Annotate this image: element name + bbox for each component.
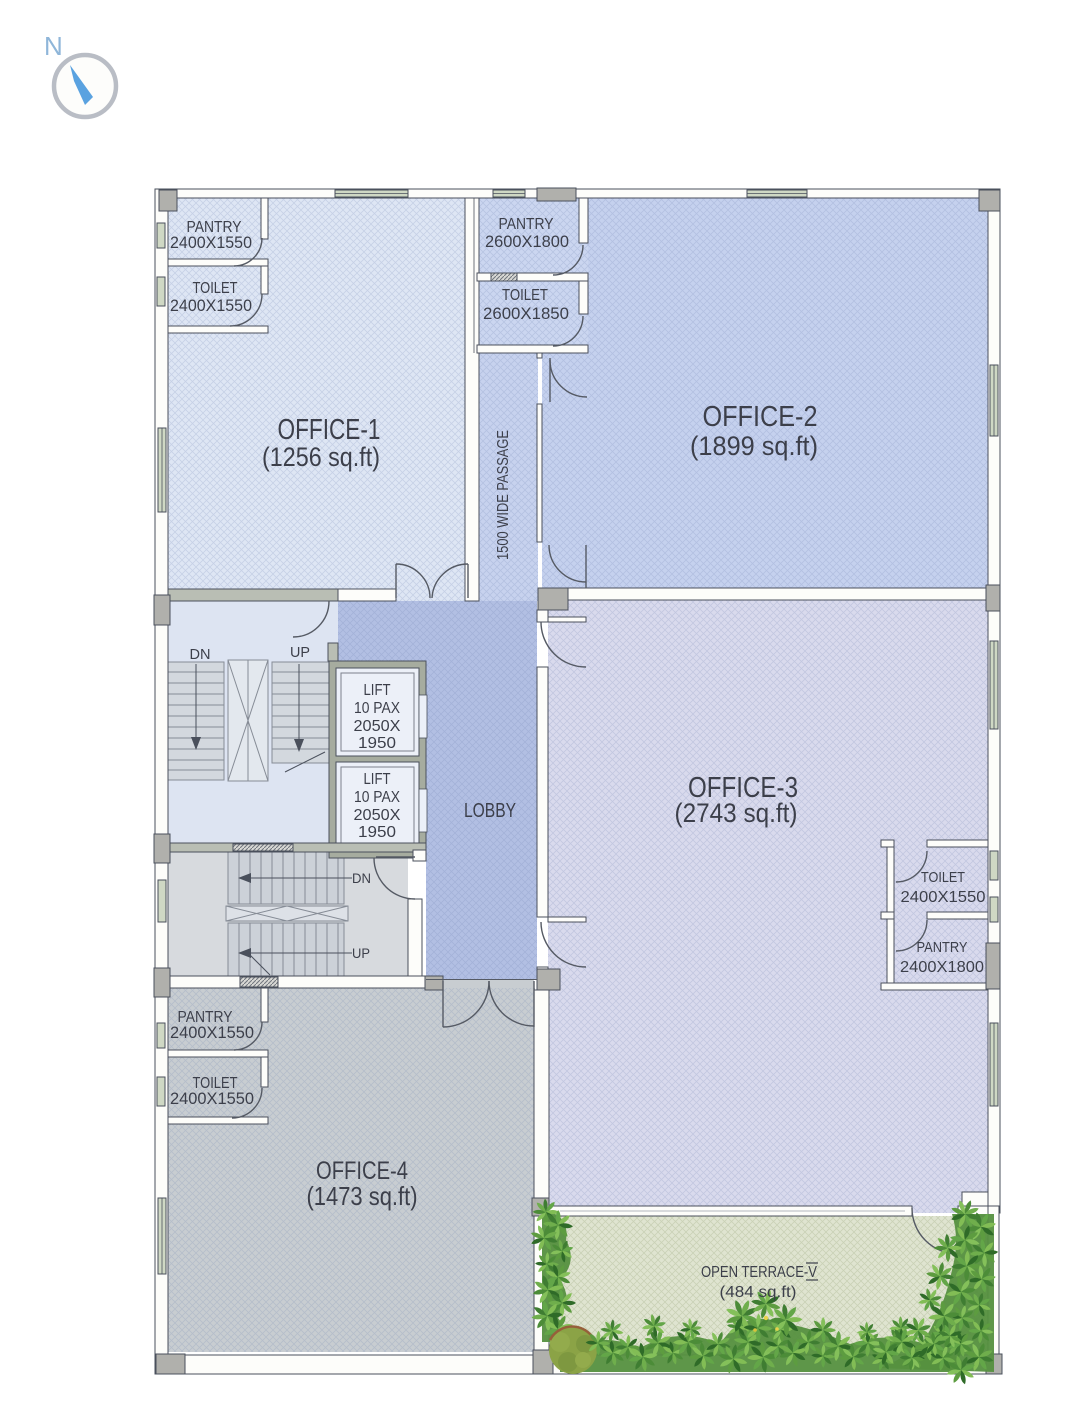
svg-text:LIFT: LIFT [364, 771, 391, 788]
svg-text:TOILET: TOILET [502, 287, 548, 304]
svg-text:(2743 sq.ft): (2743 sq.ft) [675, 798, 798, 828]
svg-text:2050X: 2050X [354, 718, 402, 735]
svg-text:2400X1550: 2400X1550 [901, 889, 986, 906]
svg-text:UP: UP [352, 945, 370, 961]
svg-text:2400X1800: 2400X1800 [900, 959, 984, 976]
svg-text:(1256 sq.ft): (1256 sq.ft) [262, 442, 380, 472]
svg-text:TOILET: TOILET [193, 280, 238, 297]
svg-text:2600X1800: 2600X1800 [485, 233, 569, 251]
svg-text:DN: DN [190, 646, 211, 663]
svg-text:1950: 1950 [358, 735, 396, 752]
svg-text:N: N [44, 31, 63, 61]
svg-text:DN: DN [352, 870, 371, 886]
svg-text:PANTRY: PANTRY [917, 939, 968, 956]
svg-text:(1899 sq.ft): (1899 sq.ft) [690, 431, 818, 461]
svg-text:OPEN TERRACE-V: OPEN TERRACE-V [701, 1264, 818, 1281]
svg-text:LIFT: LIFT [364, 682, 391, 699]
svg-text:(484 sq.ft): (484 sq.ft) [720, 1284, 797, 1301]
svg-text:TOILET: TOILET [921, 869, 965, 886]
svg-text:1950: 1950 [358, 824, 396, 841]
svg-text:LOBBY: LOBBY [464, 800, 516, 822]
svg-text:2050X: 2050X [354, 807, 402, 824]
svg-text:1500 WIDE PASSAGE: 1500 WIDE PASSAGE [495, 430, 512, 560]
svg-text:2400X1550: 2400X1550 [170, 234, 252, 252]
svg-text:2600X1850: 2600X1850 [483, 305, 569, 323]
svg-text:(1473 sq.ft): (1473 sq.ft) [307, 1181, 418, 1211]
svg-text:PANTRY: PANTRY [499, 216, 554, 233]
svg-text:2400X1550: 2400X1550 [170, 1090, 254, 1108]
svg-text:2400X1550: 2400X1550 [170, 297, 252, 315]
svg-text:2400X1550: 2400X1550 [170, 1024, 254, 1042]
svg-text:10 PAX: 10 PAX [354, 700, 401, 717]
svg-text:UP: UP [290, 644, 310, 661]
svg-text:10 PAX: 10 PAX [354, 789, 401, 806]
svg-text:OFFICE-2: OFFICE-2 [703, 401, 818, 433]
